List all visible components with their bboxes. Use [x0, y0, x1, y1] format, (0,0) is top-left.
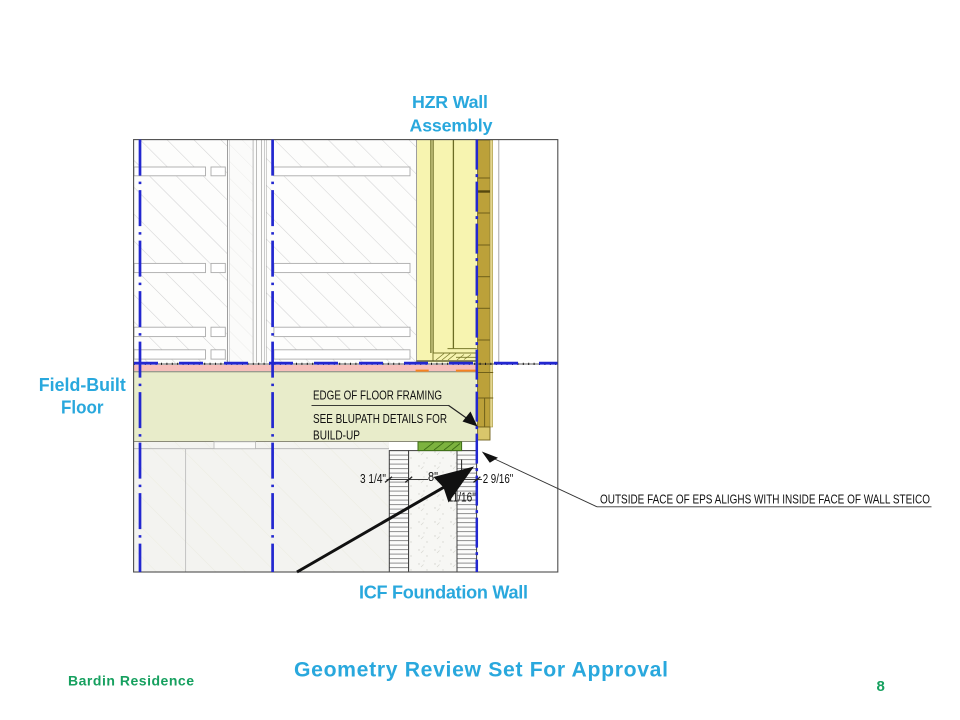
svg-text:8: 8 — [877, 678, 885, 695]
svg-text:Assembly: Assembly — [410, 115, 493, 135]
svg-text:Geometry Review Set For Approv: Geometry Review Set For Approval — [294, 659, 668, 682]
svg-text:HZR Wall: HZR Wall — [412, 92, 488, 112]
svg-text:ICF Foundation Wall: ICF Foundation Wall — [359, 583, 528, 603]
svg-text:Floor: Floor — [61, 396, 104, 417]
svg-text:OUTSIDE FACE OF EPS ALIGHS WIT: OUTSIDE FACE OF EPS ALIGHS WITH INSIDE F… — [600, 493, 930, 507]
svg-text:Field-Built: Field-Built — [39, 374, 126, 395]
svg-text:BUILD-UP: BUILD-UP — [313, 428, 360, 443]
svg-text:Bardin Residence: Bardin Residence — [68, 672, 194, 688]
svg-text:EDGE OF FLOOR FRAMING: EDGE OF FLOOR FRAMING — [313, 388, 442, 403]
svg-text:SEE BLUPATH DETAILS FOR: SEE BLUPATH DETAILS FOR — [313, 411, 447, 426]
svg-text:2 9/16": 2 9/16" — [483, 471, 514, 486]
svg-text:3 1/4": 3 1/4" — [360, 471, 386, 486]
